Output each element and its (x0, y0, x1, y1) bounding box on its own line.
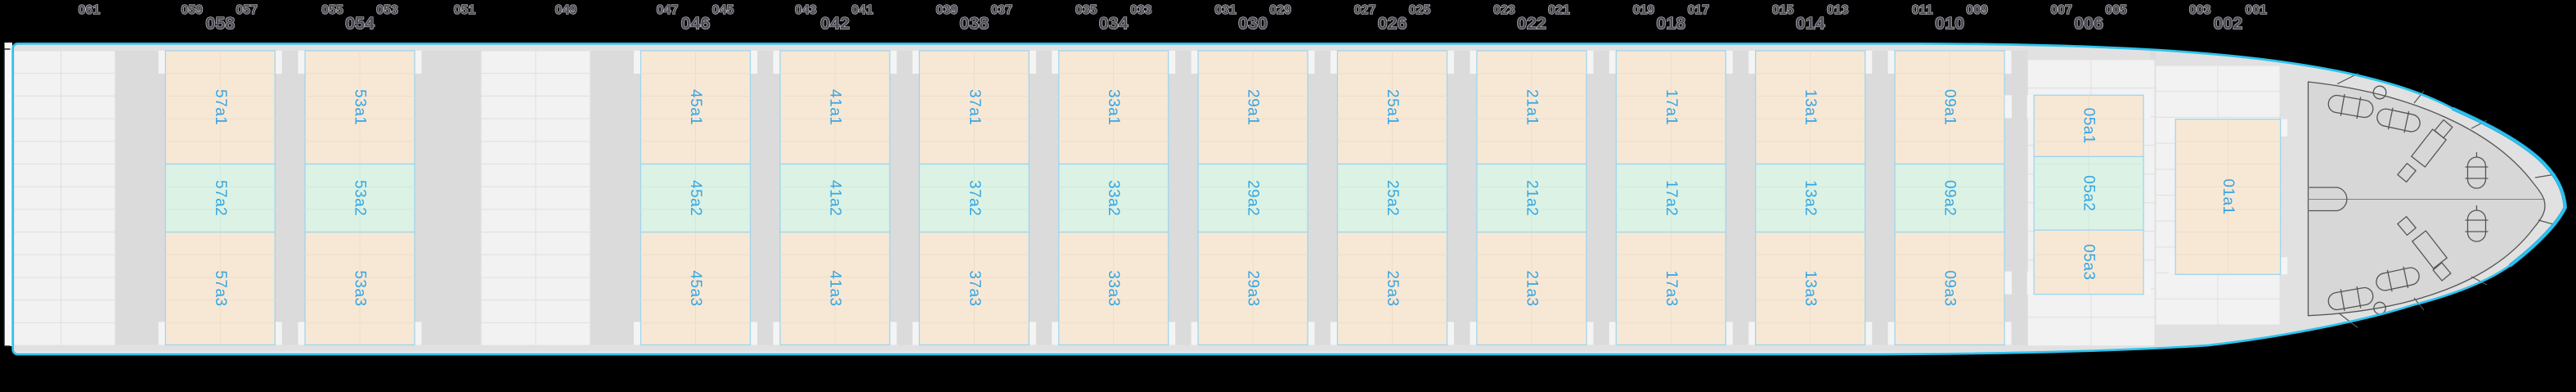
svg-text:018: 018 (1656, 14, 1685, 34)
svg-text:45a2: 45a2 (687, 180, 704, 216)
svg-text:022: 022 (1517, 14, 1546, 34)
svg-text:057: 057 (236, 3, 258, 17)
svg-text:037: 037 (990, 3, 1012, 17)
svg-text:039: 039 (936, 3, 958, 17)
svg-text:029: 029 (1269, 3, 1291, 17)
svg-text:17a1: 17a1 (1663, 89, 1680, 125)
svg-text:45a1: 45a1 (687, 89, 704, 125)
svg-text:061: 061 (79, 3, 101, 17)
svg-text:031: 031 (1214, 3, 1236, 17)
svg-text:009: 009 (1966, 3, 1988, 17)
svg-text:058: 058 (205, 14, 235, 34)
svg-text:13a1: 13a1 (1802, 89, 1819, 125)
svg-text:059: 059 (181, 3, 203, 17)
svg-text:13a2: 13a2 (1802, 180, 1819, 216)
svg-text:015: 015 (1772, 3, 1794, 17)
svg-text:33a2: 33a2 (1105, 180, 1122, 216)
svg-text:09a3: 09a3 (1941, 270, 1959, 306)
svg-text:21a3: 21a3 (1523, 270, 1540, 306)
svg-text:043: 043 (795, 3, 817, 17)
svg-text:37a3: 37a3 (966, 270, 983, 306)
svg-text:045: 045 (712, 3, 734, 17)
svg-text:57a3: 57a3 (212, 270, 229, 306)
svg-text:055: 055 (321, 3, 343, 17)
svg-text:042: 042 (820, 14, 850, 34)
svg-text:038: 038 (959, 14, 989, 34)
svg-text:21a2: 21a2 (1523, 180, 1540, 216)
svg-text:005: 005 (2105, 3, 2127, 17)
svg-text:09a2: 09a2 (1941, 180, 1959, 216)
svg-text:33a1: 33a1 (1105, 89, 1122, 125)
svg-text:026: 026 (1378, 14, 1407, 34)
svg-text:37a2: 37a2 (966, 180, 983, 216)
svg-text:041: 041 (851, 3, 873, 17)
svg-text:003: 003 (2189, 3, 2211, 17)
svg-text:13a3: 13a3 (1802, 270, 1819, 306)
svg-text:047: 047 (657, 3, 679, 17)
svg-text:002: 002 (2213, 14, 2242, 34)
svg-text:09a1: 09a1 (1941, 89, 1959, 125)
svg-text:014: 014 (1796, 14, 1825, 34)
svg-text:049: 049 (555, 3, 577, 17)
svg-text:53a3: 53a3 (352, 270, 369, 306)
svg-text:051: 051 (454, 3, 476, 17)
svg-text:05a3: 05a3 (2080, 244, 2098, 280)
svg-text:054: 054 (345, 14, 375, 34)
svg-text:007: 007 (2050, 3, 2072, 17)
svg-text:05a2: 05a2 (2080, 175, 2098, 211)
svg-text:25a1: 25a1 (1384, 89, 1401, 125)
svg-text:034: 034 (1099, 14, 1129, 34)
svg-text:035: 035 (1075, 3, 1097, 17)
svg-text:41a3: 41a3 (827, 270, 844, 306)
svg-text:53a2: 53a2 (352, 180, 369, 216)
svg-text:023: 023 (1493, 3, 1515, 17)
svg-text:030: 030 (1238, 14, 1268, 34)
svg-text:21a1: 21a1 (1523, 89, 1540, 125)
svg-text:57a1: 57a1 (212, 89, 229, 125)
svg-text:17a2: 17a2 (1663, 180, 1680, 216)
svg-text:57a2: 57a2 (212, 180, 229, 216)
svg-text:41a2: 41a2 (827, 180, 844, 216)
svg-text:017: 017 (1687, 3, 1709, 17)
svg-text:013: 013 (1827, 3, 1849, 17)
svg-text:006: 006 (2074, 14, 2103, 34)
svg-text:011: 011 (1912, 3, 1933, 17)
svg-text:053: 053 (376, 3, 398, 17)
svg-text:45a3: 45a3 (687, 270, 704, 306)
svg-text:033: 033 (1130, 3, 1152, 17)
svg-text:29a3: 29a3 (1245, 270, 1262, 306)
svg-text:53a1: 53a1 (352, 89, 369, 125)
svg-text:021: 021 (1548, 3, 1570, 17)
svg-text:05a1: 05a1 (2080, 108, 2098, 144)
svg-text:010: 010 (1935, 14, 1964, 34)
svg-text:027: 027 (1354, 3, 1376, 17)
svg-text:025: 025 (1409, 3, 1431, 17)
svg-text:25a2: 25a2 (1384, 180, 1401, 216)
svg-text:01a1: 01a1 (2219, 178, 2237, 214)
svg-text:37a1: 37a1 (966, 89, 983, 125)
svg-text:29a2: 29a2 (1245, 180, 1262, 216)
svg-text:17a3: 17a3 (1663, 270, 1680, 306)
svg-text:019: 019 (1632, 3, 1654, 17)
svg-text:41a1: 41a1 (827, 89, 844, 125)
svg-text:25a3: 25a3 (1384, 270, 1401, 306)
svg-text:046: 046 (681, 14, 711, 34)
svg-text:29a1: 29a1 (1245, 89, 1262, 125)
svg-text:33a3: 33a3 (1105, 270, 1122, 306)
svg-text:001: 001 (2245, 3, 2267, 17)
